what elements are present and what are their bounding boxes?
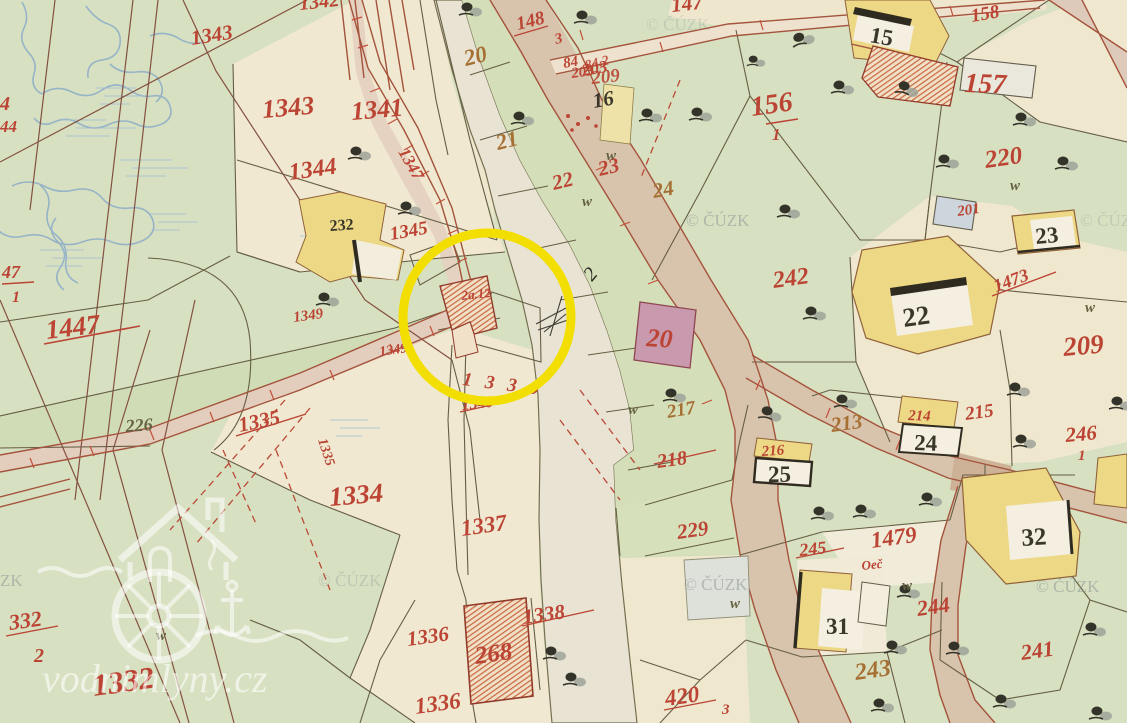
svg-text:© ČÚZK: © ČÚZK [318,571,382,590]
svg-text:© ČÚZK: © ČÚZK [1080,211,1127,230]
svg-text:© ČÚZK: © ČÚZK [684,575,748,594]
svg-text:ZK: ZK [0,571,23,590]
svg-text:vodnimlyny.cz: vodnimlyny.cz [42,656,268,701]
svg-text:© ČÚZK: © ČÚZK [1036,577,1100,596]
svg-text:© ČÚZK: © ČÚZK [646,15,710,34]
svg-text:© ČÚZK: © ČÚZK [686,211,750,230]
